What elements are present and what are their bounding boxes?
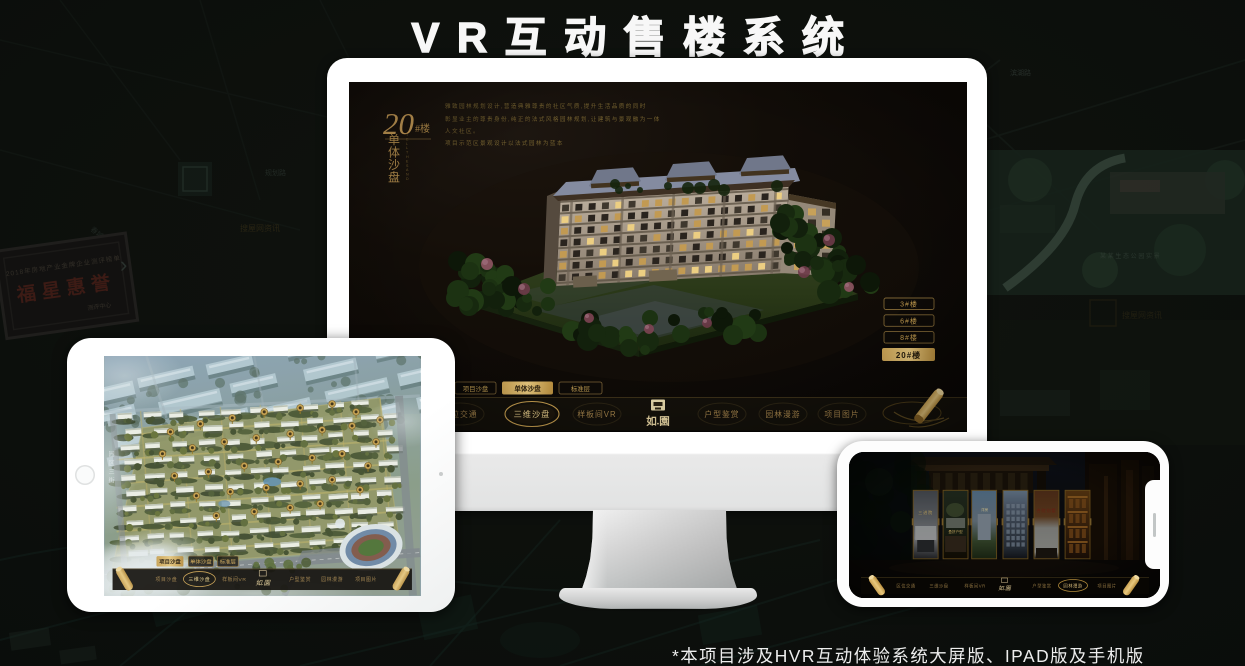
svg-text:园林漫游: 园林漫游 (1063, 582, 1082, 589)
svg-text:规划路: 规划路 (265, 168, 286, 177)
svg-text:搜屋网资讯: 搜屋网资讯 (1122, 310, 1162, 320)
svg-text:某 某 生 态 公 园 实 景: 某 某 生 态 公 园 实 景 (1100, 252, 1160, 260)
svg-text:项目图片: 项目图片 (1097, 582, 1116, 589)
svg-text:区位交通: 区位交通 (896, 582, 915, 589)
svg-text:三维沙盘: 三维沙盘 (929, 582, 948, 589)
svg-text:如.園: 如.園 (998, 585, 1012, 592)
svg-text:户型鉴赏: 户型鉴赏 (1032, 582, 1051, 589)
svg-text:›: › (120, 252, 127, 277)
svg-text:滨湖路: 滨湖路 (1010, 68, 1031, 77)
svg-text:样板间VR: 样板间VR (964, 582, 985, 589)
svg-text:搜屋网资讯: 搜屋网资讯 (240, 223, 280, 233)
